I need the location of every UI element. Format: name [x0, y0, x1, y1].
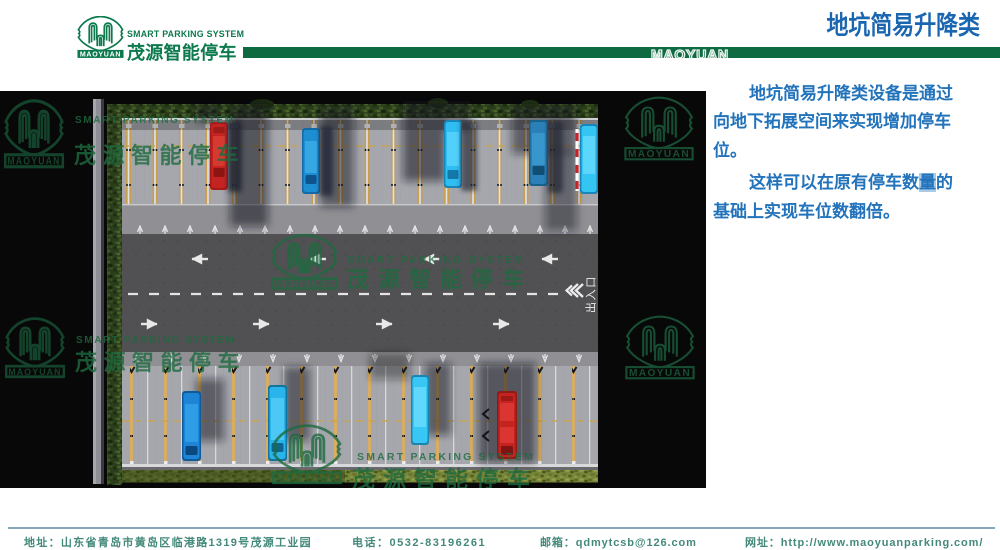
- svg-text:SMART PARKING SYSTEM: SMART PARKING SYSTEM: [357, 451, 535, 463]
- svg-text:茂源智能停车: 茂源智能停车: [352, 466, 538, 488]
- svg-text:MAOYUAN: MAOYUAN: [651, 49, 729, 58]
- svg-text:MAOYUAN: MAOYUAN: [275, 279, 335, 288]
- svg-text:MAOYUAN: MAOYUAN: [628, 149, 690, 160]
- svg-text:SMART PARKING SYSTEM: SMART PARKING SYSTEM: [75, 115, 235, 126]
- svg-text:MAOYUAN: MAOYUAN: [80, 52, 121, 58]
- svg-text:茂源智能停车: 茂源智能停车: [347, 267, 533, 292]
- svg-text:SMART PARKING SYSTEM: SMART PARKING SYSTEM: [347, 254, 525, 266]
- svg-text:茂源智能停车: 茂源智能停车: [75, 350, 246, 375]
- svg-text:SMART PARKING SYSTEM: SMART PARKING SYSTEM: [76, 335, 236, 346]
- svg-text:MAOYUAN: MAOYUAN: [629, 368, 691, 379]
- svg-text:MAOYUAN: MAOYUAN: [7, 156, 60, 168]
- svg-text:MAOYUAN: MAOYUAN: [276, 473, 338, 484]
- svg-text:出入口: 出入口: [584, 275, 598, 313]
- svg-text:MAOYUAN: MAOYUAN: [8, 366, 61, 376]
- svg-text:茂源智能停车: 茂源智能停车: [74, 143, 245, 168]
